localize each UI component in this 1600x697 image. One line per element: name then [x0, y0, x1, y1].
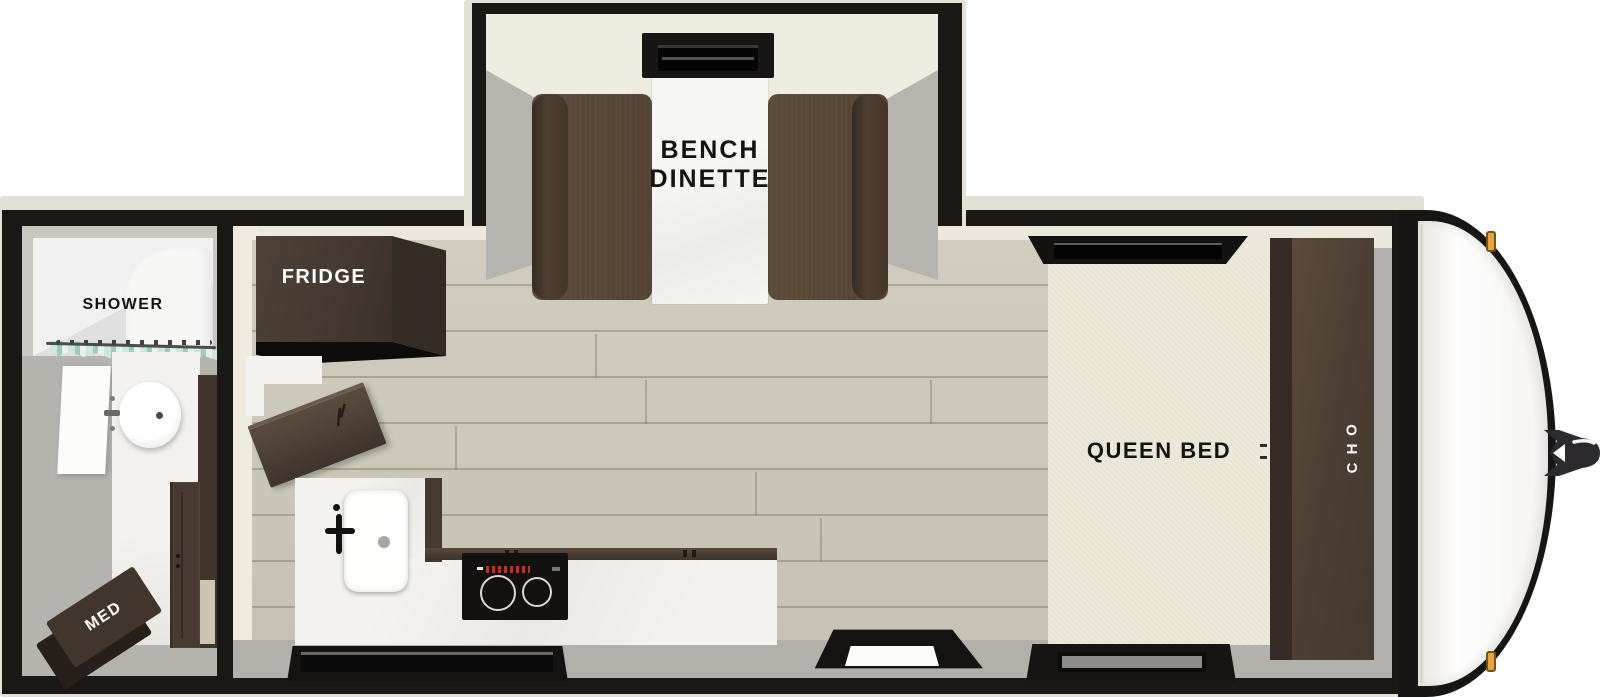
- kitchen-window: [287, 646, 568, 682]
- fold-icon: [328, 401, 355, 431]
- dinette-bench-right: [768, 94, 888, 300]
- ohc-label: OHC: [1346, 423, 1358, 476]
- plank-seam: [930, 380, 932, 424]
- sink-drain: [378, 536, 390, 548]
- bench-backrest: [852, 94, 888, 300]
- dinette-window: [642, 33, 774, 78]
- cabinet-shelf: [200, 580, 215, 644]
- slideout-sidewall-left: [486, 70, 538, 280]
- door-panel-line: [181, 492, 183, 638]
- overhead-cabinet: OHC: [1270, 238, 1374, 660]
- toilet-handle: [104, 410, 120, 416]
- bed-hinge: [1260, 456, 1267, 459]
- entry-door-panel: [845, 646, 939, 666]
- faucet-spout: [336, 514, 342, 554]
- queen-bed: QUEEN BED: [1048, 256, 1270, 645]
- cooktop-controls: [486, 566, 530, 573]
- cabinet-hinge: [692, 550, 696, 557]
- front-cap-body: [1418, 221, 1548, 686]
- fridge: FRIDGE: [256, 236, 446, 368]
- counter-shelf-side: [246, 356, 264, 416]
- hitch-coupler: [1544, 426, 1600, 480]
- toilet: [119, 382, 181, 448]
- faucet-knob: [333, 504, 340, 511]
- med-label: MED: [82, 599, 125, 636]
- window-glass: [1054, 243, 1222, 259]
- bed-hinge: [1260, 444, 1267, 447]
- bathroom-divider-wall: [217, 210, 233, 694]
- window-glass: [1058, 652, 1206, 672]
- slideout-sidewall-right: [886, 70, 938, 280]
- burner-small: [522, 577, 552, 607]
- kitchen-sink: [344, 490, 408, 592]
- queen-bed-label: QUEEN BED: [1048, 438, 1270, 463]
- floorplan-canvas: SHOWER MED FRIDGE: [0, 0, 1600, 697]
- cooktop: [462, 553, 568, 620]
- door-handle: [176, 554, 180, 558]
- fridge-label: FRIDGE: [262, 266, 386, 288]
- curtain-rings: [56, 340, 212, 345]
- plank-seam: [455, 426, 457, 470]
- cooktop-vent-icon: [552, 567, 560, 571]
- cooktop-display: [477, 567, 483, 570]
- dinette-bench-left: [532, 94, 652, 300]
- toilet-hinge: [110, 426, 115, 431]
- window-slat: [662, 57, 754, 60]
- window-glass: [301, 652, 553, 672]
- toilet-flush-button: [156, 412, 163, 419]
- bathroom-door: [170, 482, 200, 648]
- bathroom-door-open: [57, 366, 111, 474]
- plank-seam: [595, 334, 597, 378]
- plank-seam: [755, 472, 757, 516]
- dinette-label-line2: DINETTE: [625, 165, 795, 194]
- bedroom-window-top: [1028, 236, 1248, 264]
- bench-backrest: [532, 94, 568, 300]
- clearance-light-top: [1486, 231, 1496, 252]
- plank-seam: [820, 518, 822, 562]
- shower-label: SHOWER: [40, 296, 206, 314]
- burner-large: [480, 575, 516, 611]
- clearance-light-bottom: [1486, 651, 1496, 672]
- fridge-front-face: FRIDGE: [256, 236, 392, 342]
- plank-seam: [645, 380, 647, 424]
- dinette-label: BENCH DINETTE: [625, 136, 795, 194]
- dinette-label-line1: BENCH: [625, 136, 795, 165]
- bedroom-window-bottom: [1026, 644, 1236, 682]
- toilet-hinge: [110, 396, 115, 401]
- cabinet-hinge: [683, 550, 687, 557]
- front-cap-seam: [1420, 224, 1423, 683]
